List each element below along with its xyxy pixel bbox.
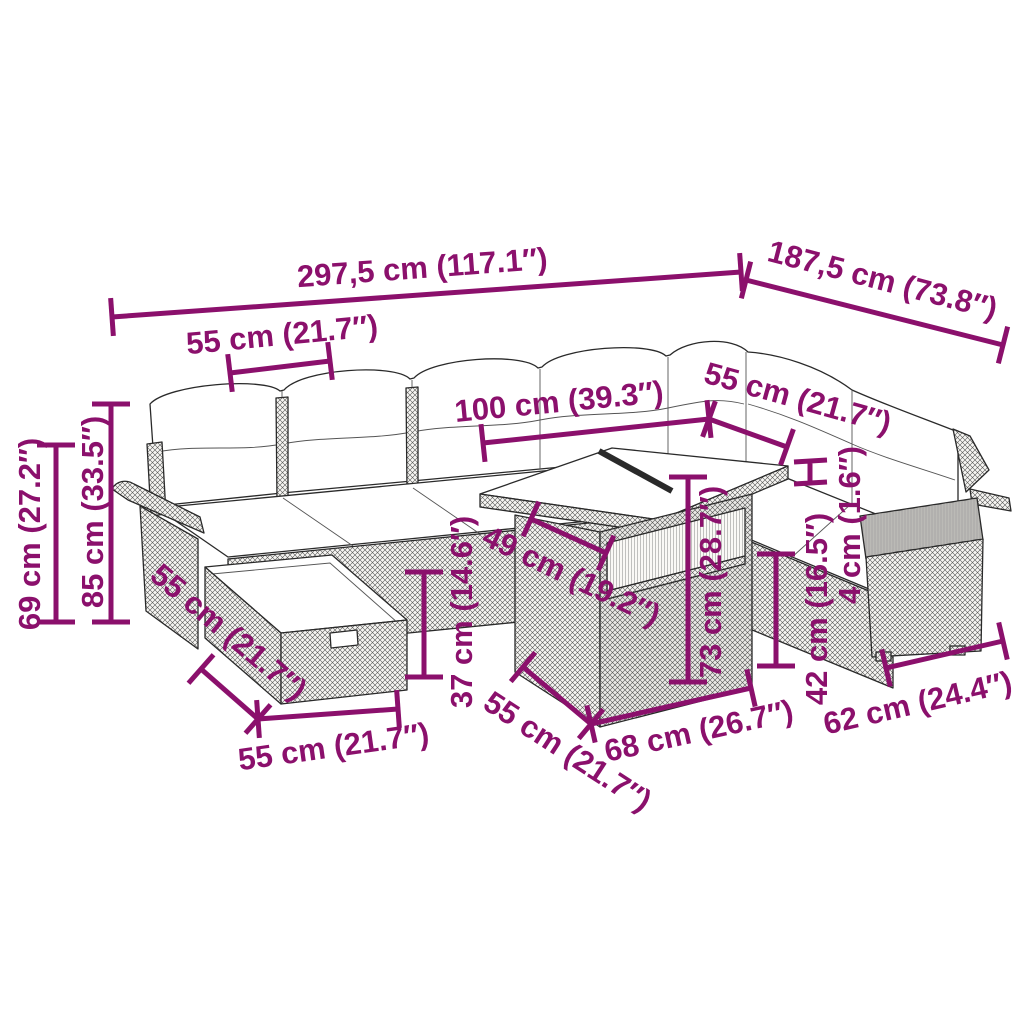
dim-ottoman-width: 55 cm (21.7″)	[236, 690, 431, 777]
dim-back-height: 69 cm (27.2″)	[12, 438, 75, 630]
furniture-dimensions-diagram: 297,5 cm (117.1″)187,5 cm (73.8″)55 cm (…	[0, 0, 1024, 1024]
dim-label-armchair-depth: 62 cm (24.4″)	[820, 664, 1015, 741]
dim-label-seat-width-left: 55 cm (21.7″)	[185, 308, 380, 361]
dim-glass-thickness: 4 cm (1.6″)	[832, 446, 867, 604]
dim-label-ottoman-height: 37 cm (14.6″)	[444, 516, 479, 708]
diagram-canvas: 297,5 cm (117.1″)187,5 cm (73.8″)55 cm (…	[0, 0, 1024, 1024]
dim-total-width: 297,5 cm (117.1″)	[111, 241, 743, 336]
dim-total-height: 85 cm (33.5″)	[75, 404, 130, 622]
dim-label-glass-thickness: 4 cm (1.6″)	[832, 446, 867, 604]
dim-label-total-height: 85 cm (33.5″)	[75, 416, 110, 608]
dim-label-seat-height: 42 cm (16.5″)	[799, 513, 834, 705]
dim-label-back-height: 69 cm (27.2″)	[12, 438, 47, 630]
dim-label-ottoman-width: 55 cm (21.7″)	[236, 716, 431, 777]
ottoman-handle	[330, 630, 358, 648]
dim-label-table-height: 73 cm (28.7″)	[693, 486, 728, 678]
dim-total-depth: 187,5 cm (73.8″)	[741, 233, 1007, 363]
